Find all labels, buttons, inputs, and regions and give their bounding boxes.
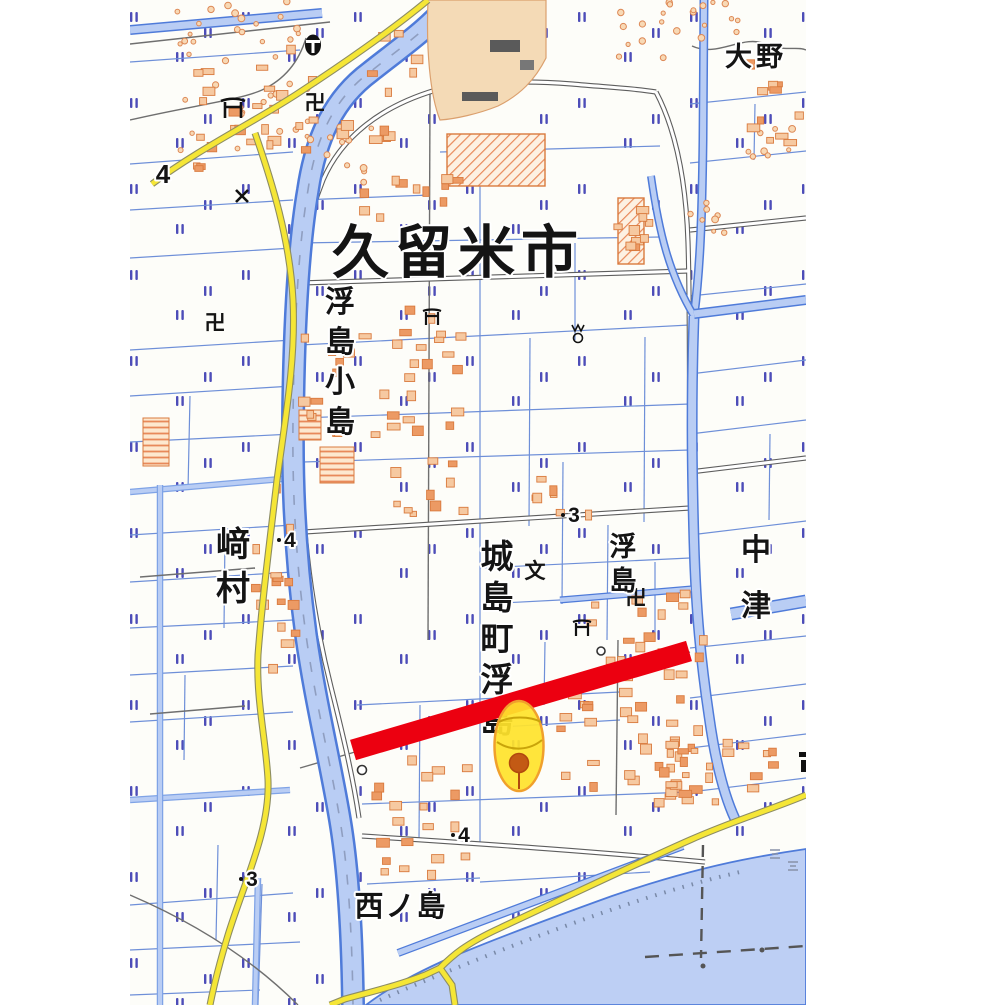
map-canvas[interactable]: 卍 卍 文 卍 久留米市 大野 浮島小島 﨑村 <box>0 0 1005 1005</box>
place-label-nishinoshima: 西ノ島 <box>354 890 447 923</box>
well-symbol <box>597 647 605 655</box>
town-office-symbol <box>305 35 321 56</box>
temple-symbol: 卍 <box>205 312 226 335</box>
svg-text:4: 4 <box>458 824 470 847</box>
svg-text:3: 3 <box>568 504 580 527</box>
place-label-ono: 大野 <box>725 42 787 72</box>
map-page: 卍 卍 文 卍 久留米市 大野 浮島小島 﨑村 <box>0 0 1005 1005</box>
school-symbol: 文 <box>525 559 547 583</box>
temple-symbol: 卍 <box>305 92 326 115</box>
marker-dot <box>510 754 529 773</box>
city-label: 久留米市 <box>332 221 584 285</box>
spot-elevation: 4 <box>156 159 171 189</box>
well-symbol <box>358 766 367 775</box>
location-marker <box>495 701 544 791</box>
svg-text:3: 3 <box>246 868 258 891</box>
svg-text:4: 4 <box>284 529 296 552</box>
